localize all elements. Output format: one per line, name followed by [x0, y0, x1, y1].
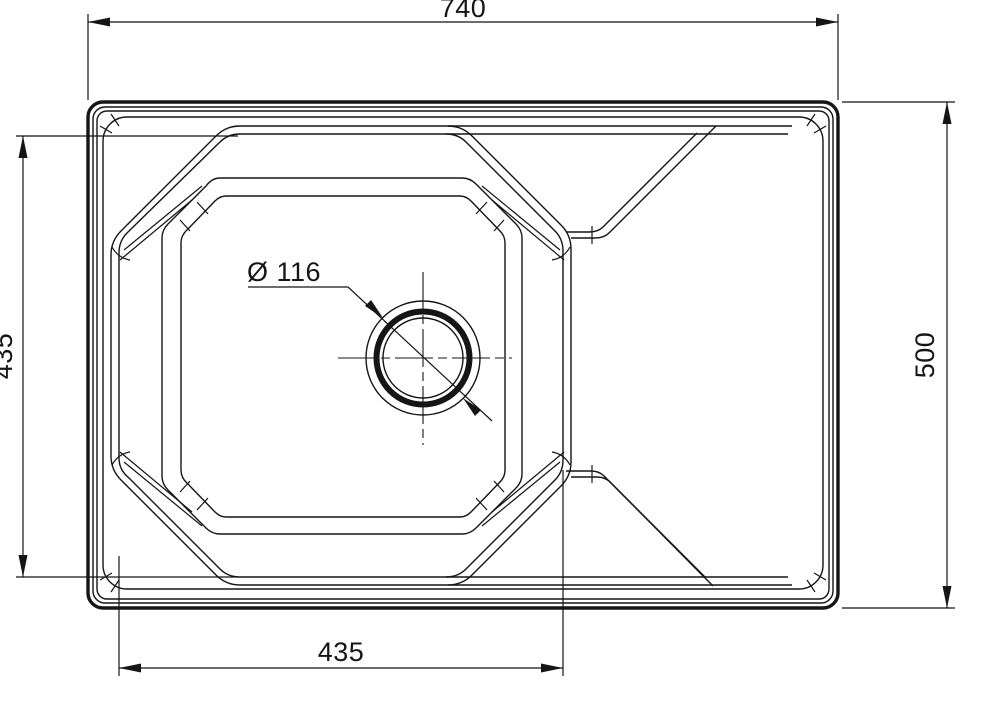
- dimension-arrow-top: [943, 102, 952, 124]
- drainboard: [446, 126, 792, 586]
- dimension-arrow-right: [541, 664, 563, 673]
- leader-arrow-lower: [463, 398, 481, 416]
- dimension-bowl-width: 435: [119, 470, 563, 676]
- dimension-arrow-left: [88, 18, 110, 27]
- sink-top-view-technical-drawing: 740 500 435 435 Ø 116: [0, 0, 1000, 701]
- leader-arrow-upper: [365, 300, 383, 318]
- dimension-label-bowl-depth: 435: [0, 333, 18, 380]
- drainboard-slope-bottom-inner: [566, 471, 705, 577]
- dimension-label-overall-width: 740: [440, 0, 487, 23]
- technical-drawing-canvas: 740 500 435 435 Ø 116: [0, 0, 1000, 701]
- dimension-arrow-bottom: [943, 586, 952, 608]
- bowl: [111, 126, 571, 585]
- drainboard-slope-top-outer: [571, 126, 716, 238]
- bowl-chamfer-ticks: [180, 202, 504, 510]
- dimension-arrow-top: [19, 136, 28, 158]
- dimension-arrow-left: [119, 664, 141, 673]
- dimension-overall-width: 740: [88, 0, 838, 100]
- bowl-rim-inner: [119, 134, 563, 577]
- bowl-floor-edge: [181, 196, 505, 517]
- dimension-label-bowl-width: 435: [318, 637, 365, 667]
- dimension-label-drain-diameter: Ø 116: [247, 257, 321, 287]
- dimension-arrow-bottom: [19, 555, 28, 577]
- dimension-arrow-right: [816, 18, 838, 27]
- bowl-rim-outer: [111, 126, 571, 585]
- dimension-label-overall-depth: 500: [910, 332, 940, 379]
- drainboard-slope-top-inner: [566, 133, 697, 232]
- drainboard-slope-bottom-outer: [571, 477, 713, 586]
- dimension-overall-depth: 500: [842, 102, 955, 608]
